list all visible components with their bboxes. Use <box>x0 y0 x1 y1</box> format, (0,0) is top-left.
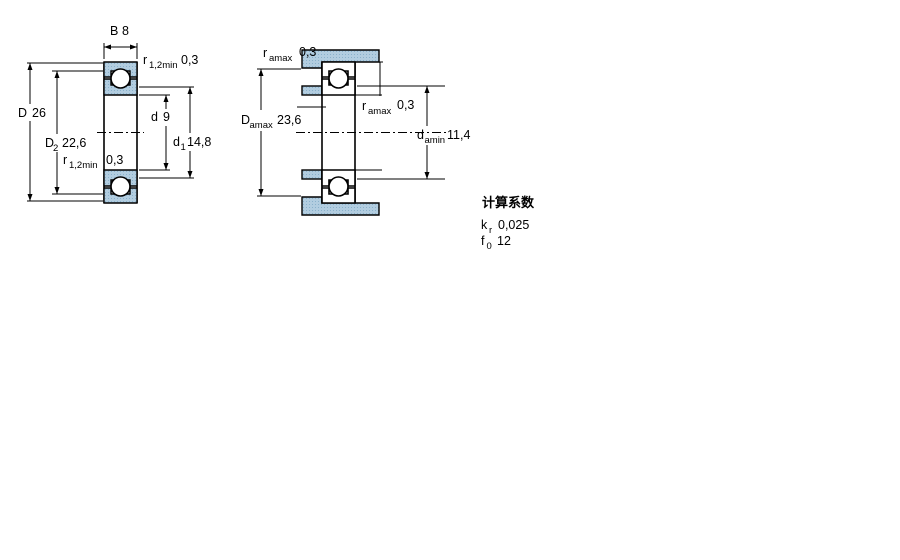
value-D: 26 <box>32 106 46 120</box>
label-Damax-sub: amax <box>250 120 273 131</box>
label-r-bottom-sub: 1,2min <box>69 160 98 171</box>
right-mounting-view: D amax 23,6 d amin 11,4 r amax 0,3 r ama… <box>241 45 470 215</box>
ball-top-right <box>329 69 348 88</box>
label-r12min-top: r 1,2min 0,3 <box>143 53 198 71</box>
value-ra-mid: 0,3 <box>397 98 414 112</box>
label-r-top-sub: 1,2min <box>149 60 178 71</box>
label-D2-sub: 2 <box>53 143 58 154</box>
label-r-top: r <box>143 53 147 67</box>
dimension-d1: d 1 14,8 <box>139 87 211 178</box>
label-d: d <box>151 110 158 124</box>
bearing-technical-drawing: B 8 D 26 D 2 22,6 <box>0 0 900 560</box>
label-r12min-bottom: r 1,2min 0,3 <box>63 153 123 171</box>
value-r-bottom: 0,3 <box>106 153 123 167</box>
label-d1: d <box>173 135 180 149</box>
dimension-D2: D 2 22,6 <box>45 71 103 194</box>
factor-kr-value: 0,025 <box>498 218 529 232</box>
dimension-Damax: D amax 23,6 <box>241 69 301 196</box>
dimension-D: D 26 <box>18 63 103 201</box>
label-damin: d <box>417 128 424 142</box>
factor-kr-sub: r <box>489 225 492 236</box>
label-ra-top: r <box>263 46 267 60</box>
dimension-B: B 8 <box>104 24 137 59</box>
value-D2: 22,6 <box>62 136 86 150</box>
value-d: 9 <box>163 110 170 124</box>
factor-f0-symbol: f <box>481 234 485 248</box>
calculation-factors: 计算系数 k r 0,025 f 0 12 <box>481 195 535 252</box>
value-r-top: 0,3 <box>181 53 198 67</box>
ball-top <box>111 69 130 88</box>
calculation-factors-title: 计算系数 <box>482 195 535 210</box>
label-r-bottom: r <box>63 153 67 167</box>
value-Damax: 23,6 <box>277 113 301 127</box>
label-d1-sub: 1 <box>181 142 186 153</box>
value-damin: 11,4 <box>447 128 470 142</box>
value-B: 8 <box>122 24 129 38</box>
value-ra-top: 0,3 <box>299 45 316 59</box>
label-ra-mid: r <box>362 99 366 113</box>
label-damin-sub: amin <box>425 135 446 146</box>
label-ramax-mid: r amax 0,3 <box>362 98 414 117</box>
left-bearing-section-view: B 8 D 26 D 2 22,6 <box>18 24 211 203</box>
factor-kr-symbol: k <box>481 218 488 232</box>
value-d1: 14,8 <box>187 135 211 149</box>
factor-f0-value: 12 <box>497 234 511 248</box>
label-ra-mid-sub: amax <box>368 106 391 117</box>
factor-row-f0: f 0 12 <box>481 234 511 252</box>
label-D: D <box>18 106 27 120</box>
bearing-drawing-page: B 8 D 26 D 2 22,6 <box>0 0 900 560</box>
label-ra-top-sub: amax <box>269 53 292 64</box>
label-B: B <box>110 24 118 38</box>
ball-bottom-right <box>329 177 348 196</box>
ball-bottom <box>111 177 130 196</box>
factor-f0-sub: 0 <box>487 241 492 252</box>
